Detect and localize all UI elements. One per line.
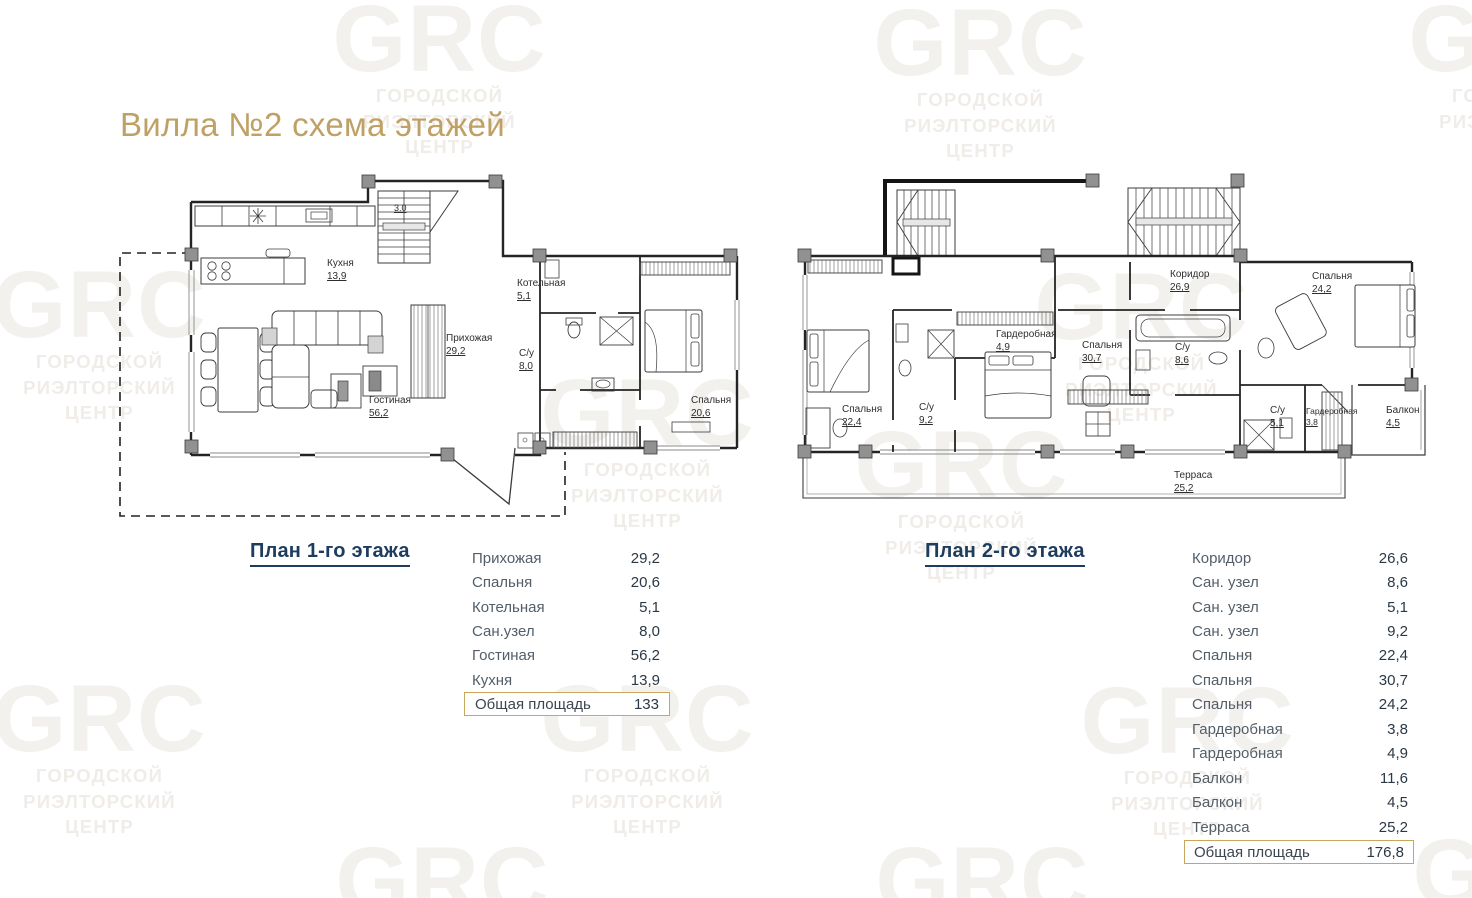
table-row: Кухня13,9 (472, 668, 660, 692)
room-label-bedroom: Спальня20,6 (691, 394, 731, 420)
grc-watermark: GRCГОРОДСКОЙРИЭЛТОРСКИЙЦЕНТР (0, 262, 207, 425)
table-row: Гостиная56,2 (472, 644, 660, 668)
table-row: Гардеробная4,9 (1192, 742, 1408, 766)
grc-logo: GRC (0, 676, 207, 763)
table-row: Гардеробная3,8 (1192, 717, 1408, 741)
area-table-plan1: Прихожая29,2 Спальня20,6 Котельная5,1 Са… (472, 546, 660, 693)
room-label-bathroom: С/у8,0 (519, 347, 534, 373)
table-row: Коридор26,6 (1192, 546, 1408, 570)
grc-logo: GRC (335, 838, 550, 898)
total-area-plan1: Общая площадь 133 (464, 692, 670, 716)
room-label-kitchen: Кухня13,9 (327, 257, 354, 283)
grc-watermark: GRCГОРОДСКОЙРИЭЛТОРСКИЙЦЕНТР (1408, 0, 1472, 159)
grc-logo: GRC (1412, 830, 1472, 898)
grc-watermark: GRCГОРОДСКОЙРИЭЛТОРСКИЙЦЕНТР (1034, 264, 1249, 427)
room-label-boiler-room: Котельная5,1 (517, 277, 565, 303)
table-row: Балкон11,6 (1192, 766, 1408, 790)
room-label-terrace: Терраса25,2 (1174, 469, 1212, 495)
table-row: Спальня24,2 (1192, 693, 1408, 717)
table-row: Сан. узел5,1 (1192, 595, 1408, 619)
room-label-wardrobe: Гардеробная4,9 (996, 328, 1057, 354)
table-row: Спальня30,7 (1192, 668, 1408, 692)
plan1-heading: План 1-го этажа (250, 540, 410, 567)
table-row: Спальня22,4 (1192, 644, 1408, 668)
grc-watermark: GRCГОРОДСКОЙРИЭЛТОРСКИЙЦЕНТР (0, 676, 207, 839)
grc-logo: GRC (0, 262, 207, 349)
room-label-bedroom: Спальня22,4 (842, 403, 882, 429)
grc-logo: GRC (1034, 264, 1249, 351)
room-label-bathroom: С/у8,6 (1175, 341, 1190, 367)
grc-watermark: GRC (875, 838, 1090, 898)
table-row: Сан.узел8,0 (472, 619, 660, 643)
grc-watermark: GRC (335, 838, 550, 898)
grc-logo: GRC (332, 0, 547, 83)
stairs-height-note: 3.0 (394, 203, 407, 213)
grc-logo: GRC (875, 838, 1090, 898)
table-row: Балкон4,5 (1192, 790, 1408, 814)
room-label-corridor: Коридор26,9 (1170, 268, 1210, 294)
plan1-drawing (120, 175, 739, 516)
table-row: Котельная5,1 (472, 595, 660, 619)
plan2-heading: План 2-го этажа (925, 540, 1085, 567)
table-row: Сан. узел9,2 (1192, 619, 1408, 643)
room-label-bedroom: Спальня30,7 (1082, 339, 1122, 365)
page-title: Вилла №2 схема этажей (120, 106, 505, 144)
table-row: Прихожая29,2 (472, 546, 660, 570)
total-area-plan2: Общая площадь 176,8 (1184, 840, 1414, 864)
table-row: Спальня20,6 (472, 570, 660, 594)
plan2-drawing (798, 174, 1425, 498)
room-label-hallway: Прихожая29,2 (446, 332, 492, 358)
grc-watermark: GRC (1412, 830, 1472, 898)
room-label-balcony: Балкон4,5 (1386, 404, 1420, 430)
area-table-plan2: Коридор26,6 Сан. узел8,6 Сан. узел5,1 Са… (1192, 546, 1408, 839)
room-label-bathroom: С/у9,2 (919, 401, 934, 427)
room-label-living-room: Гостиная56,2 (369, 394, 411, 420)
room-label-bedroom: Спальня24,2 (1312, 270, 1352, 296)
grc-logo: GRC (1408, 0, 1472, 83)
table-row: Сан. узел8,6 (1192, 570, 1408, 594)
floor-plan-sheet: GRCГОРОДСКОЙРИЭЛТОРСКИЙЦЕНТР GRCГОРОДСКО… (0, 0, 1472, 898)
grc-logo: GRC (873, 0, 1088, 87)
table-row: Терраса25,2 (1192, 815, 1408, 839)
room-label-wardrobe: Гардеробная3,8 (1306, 406, 1357, 428)
grc-logo: GRC (854, 422, 1069, 509)
room-label-bathroom: С/у5,1 (1270, 404, 1285, 430)
grc-watermark: GRCГОРОДСКОЙРИЭЛТОРСКИЙЦЕНТР (873, 0, 1088, 163)
